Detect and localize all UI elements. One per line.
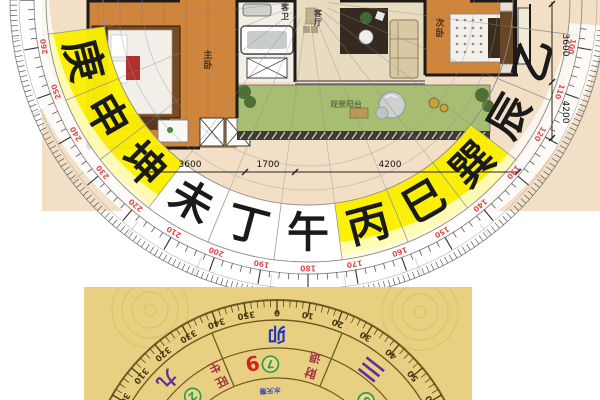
- fine-tick: [226, 280, 228, 287]
- bath-sink: [243, 4, 271, 16]
- fine-tick: [23, 85, 30, 87]
- gold-pot: [440, 104, 448, 112]
- fine-tick: [449, 255, 452, 261]
- fine-tick: [32, 109, 38, 112]
- dim-1700: 1700: [257, 160, 280, 170]
- fine-tick: [426, 266, 429, 272]
- fine-tick: [14, 46, 21, 47]
- bed-throw: [126, 56, 140, 80]
- blanket-dot: [456, 27, 459, 30]
- fine-tick: [408, 273, 410, 280]
- top-group: 主卧客卫客厅次卧观景阳台3600170042003600420010011012…: [10, 0, 600, 287]
- fine-tick: [479, 235, 483, 241]
- fine-tick: [164, 255, 167, 261]
- dim-4200: 4200: [379, 160, 402, 170]
- luopan-degree-label: 10: [301, 309, 314, 321]
- fine-tick: [28, 100, 35, 102]
- landscape-boulder-small: [376, 107, 388, 119]
- fine-tick: [412, 272, 415, 279]
- fine-tick: [17, 61, 24, 62]
- fine-tick: [440, 259, 443, 265]
- fine-tick: [109, 216, 114, 221]
- floorplan-compass-overlay: 主卧客卫客厅次卧观景阳台3600170042003600420010011012…: [0, 0, 600, 287]
- fine-tick: [216, 277, 218, 284]
- fine-tick: [146, 244, 150, 250]
- fine-tick: [466, 244, 470, 250]
- balcony-mat: [350, 108, 368, 118]
- blanket-dot: [480, 27, 483, 30]
- mountain-char: 午: [287, 208, 329, 257]
- fine-tick: [495, 223, 499, 228]
- sofa: [390, 20, 418, 78]
- fine-tick: [112, 220, 117, 225]
- blanket-dot: [472, 43, 475, 46]
- desk: [158, 120, 188, 142]
- fine-tick: [192, 268, 195, 274]
- coffee-table: [359, 30, 373, 44]
- blanket-dot: [464, 27, 467, 30]
- fine-tick: [422, 268, 425, 274]
- floorplan: 主卧客卫客厅次卧观景阳台: [88, 0, 530, 148]
- fine-tick: [159, 252, 163, 258]
- fine-tick: [15, 56, 22, 57]
- blanket-dot: [456, 35, 459, 38]
- luopan-compass: 3003103203303403500102030405060九卯2生旺97退財…: [0, 287, 600, 400]
- blanket-dot: [480, 43, 483, 46]
- bathtub-water: [247, 31, 287, 49]
- fine-tick: [417, 270, 420, 276]
- room-label-master: 卧: [203, 59, 212, 71]
- fine-tick: [116, 223, 120, 228]
- fine-tick: [201, 272, 204, 279]
- nightstand: [500, 2, 514, 11]
- fine-tick: [206, 273, 208, 280]
- fine-tick: [475, 238, 479, 244]
- dim-3600: 3600: [179, 160, 202, 170]
- room-label-master: 主: [203, 49, 212, 61]
- fine-tick: [398, 277, 400, 284]
- fine-tick: [388, 280, 390, 287]
- blanket-dot: [472, 35, 475, 38]
- blanket-dot: [480, 51, 483, 54]
- fine-tick: [36, 118, 42, 121]
- fine-tick: [26, 95, 33, 97]
- blanket-dot: [464, 35, 467, 38]
- fine-tick: [196, 270, 199, 276]
- fine-tick: [491, 226, 495, 231]
- fine-tick: [173, 259, 176, 265]
- fine-tick: [155, 249, 159, 255]
- blanket-dot: [472, 51, 475, 54]
- fine-tick: [13, 40, 20, 41]
- fine-tick: [211, 275, 213, 282]
- fine-tick: [503, 216, 508, 221]
- blanket-dot: [456, 51, 459, 54]
- fine-tick: [18, 65, 25, 67]
- fine-tick: [105, 213, 110, 218]
- fine-tick: [20, 75, 27, 77]
- degree-label: 180: [300, 264, 316, 273]
- room-label-living: 厅: [314, 18, 322, 27]
- luopan-degree-label: 0: [274, 307, 280, 317]
- fine-tick: [141, 241, 145, 247]
- fine-tick: [454, 252, 458, 258]
- fine-tick: [182, 264, 185, 270]
- blanket-dot: [480, 35, 483, 38]
- room-label-second: 次: [435, 17, 444, 29]
- luopan-outer-glyph: 卯: [267, 323, 286, 345]
- room-label-balcony: 观景阳台: [330, 99, 362, 109]
- blanket-dot: [464, 43, 467, 46]
- fine-tick: [177, 262, 180, 268]
- room-label-second: 卧: [435, 27, 444, 39]
- luopan-group: 3003103203303403500102030405060九卯2生旺97退財…: [84, 287, 472, 400]
- room-label-living: 客: [313, 8, 323, 18]
- blanket-dot: [480, 19, 483, 22]
- fine-tick: [22, 80, 29, 82]
- fine-tick: [15, 51, 22, 52]
- blanket-dot: [456, 43, 459, 46]
- fine-tick: [187, 266, 190, 272]
- fine-tick: [19, 70, 26, 72]
- fine-tick: [393, 278, 395, 285]
- fine-tick: [431, 264, 434, 270]
- fine-tick: [133, 235, 137, 241]
- fengshui-screenshot: 主卧客卫客厅次卧观景阳台3600170042003600420010011012…: [0, 0, 600, 400]
- pillow: [111, 35, 127, 57]
- fine-tick: [221, 278, 223, 285]
- fine-tick: [150, 247, 154, 253]
- fine-tick: [471, 241, 475, 247]
- fine-tick: [462, 247, 466, 253]
- fine-tick: [403, 275, 405, 282]
- fine-tick: [436, 262, 439, 268]
- fine-tick: [499, 220, 504, 225]
- fine-tick: [120, 226, 124, 231]
- circled-number: 7: [266, 357, 274, 370]
- fine-tick: [25, 90, 32, 92]
- balcony-plant: [244, 96, 256, 108]
- fine-tick: [458, 249, 462, 255]
- fine-tick: [137, 238, 141, 244]
- fine-tick: [506, 213, 511, 218]
- fine-tick: [168, 257, 171, 263]
- fine-tick: [34, 114, 40, 117]
- fine-tick: [30, 104, 37, 107]
- luopan-inner-text: 水天需: [259, 386, 281, 396]
- fine-tick: [445, 257, 448, 263]
